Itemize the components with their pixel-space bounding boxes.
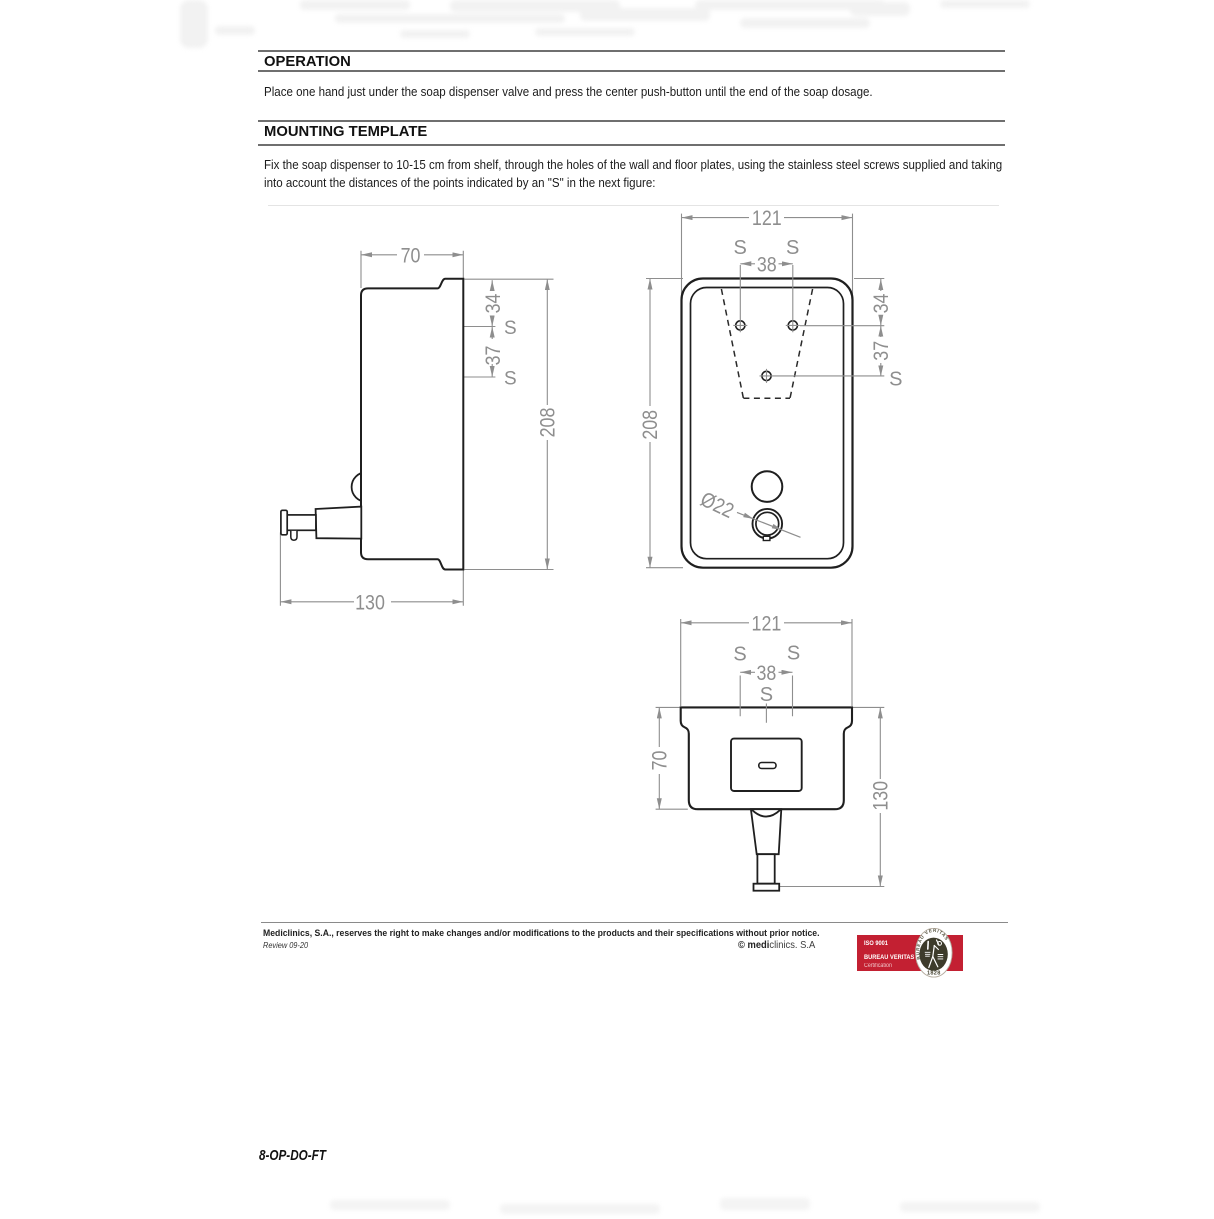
svg-text:38: 38 [757, 253, 777, 277]
svg-text:S: S [786, 237, 799, 259]
svg-text:1828: 1828 [927, 970, 941, 976]
svg-text:208: 208 [639, 410, 663, 440]
svg-text:34: 34 [482, 293, 506, 313]
svg-text:121: 121 [752, 207, 782, 231]
svg-text:S: S [760, 684, 773, 706]
svg-text:130: 130 [869, 781, 893, 811]
svg-text:70: 70 [401, 244, 421, 268]
svg-text:S: S [504, 318, 517, 339]
svg-text:208: 208 [536, 408, 560, 438]
svg-text:130: 130 [355, 591, 385, 615]
svg-text:S: S [787, 643, 800, 665]
svg-text:38: 38 [756, 661, 776, 685]
svg-text:S: S [734, 237, 747, 259]
svg-text:37: 37 [870, 341, 894, 361]
svg-text:S: S [733, 643, 746, 665]
svg-text:121: 121 [752, 612, 782, 636]
svg-text:S: S [889, 368, 902, 390]
svg-text:70: 70 [648, 750, 672, 770]
svg-text:S: S [504, 368, 517, 389]
svg-text:34: 34 [870, 293, 894, 313]
svg-text:37: 37 [482, 346, 506, 366]
